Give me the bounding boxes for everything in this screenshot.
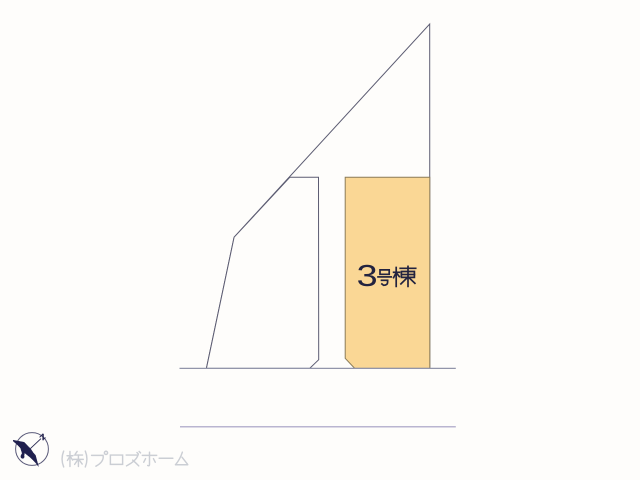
svg-text:3: 3 [357, 259, 378, 293]
